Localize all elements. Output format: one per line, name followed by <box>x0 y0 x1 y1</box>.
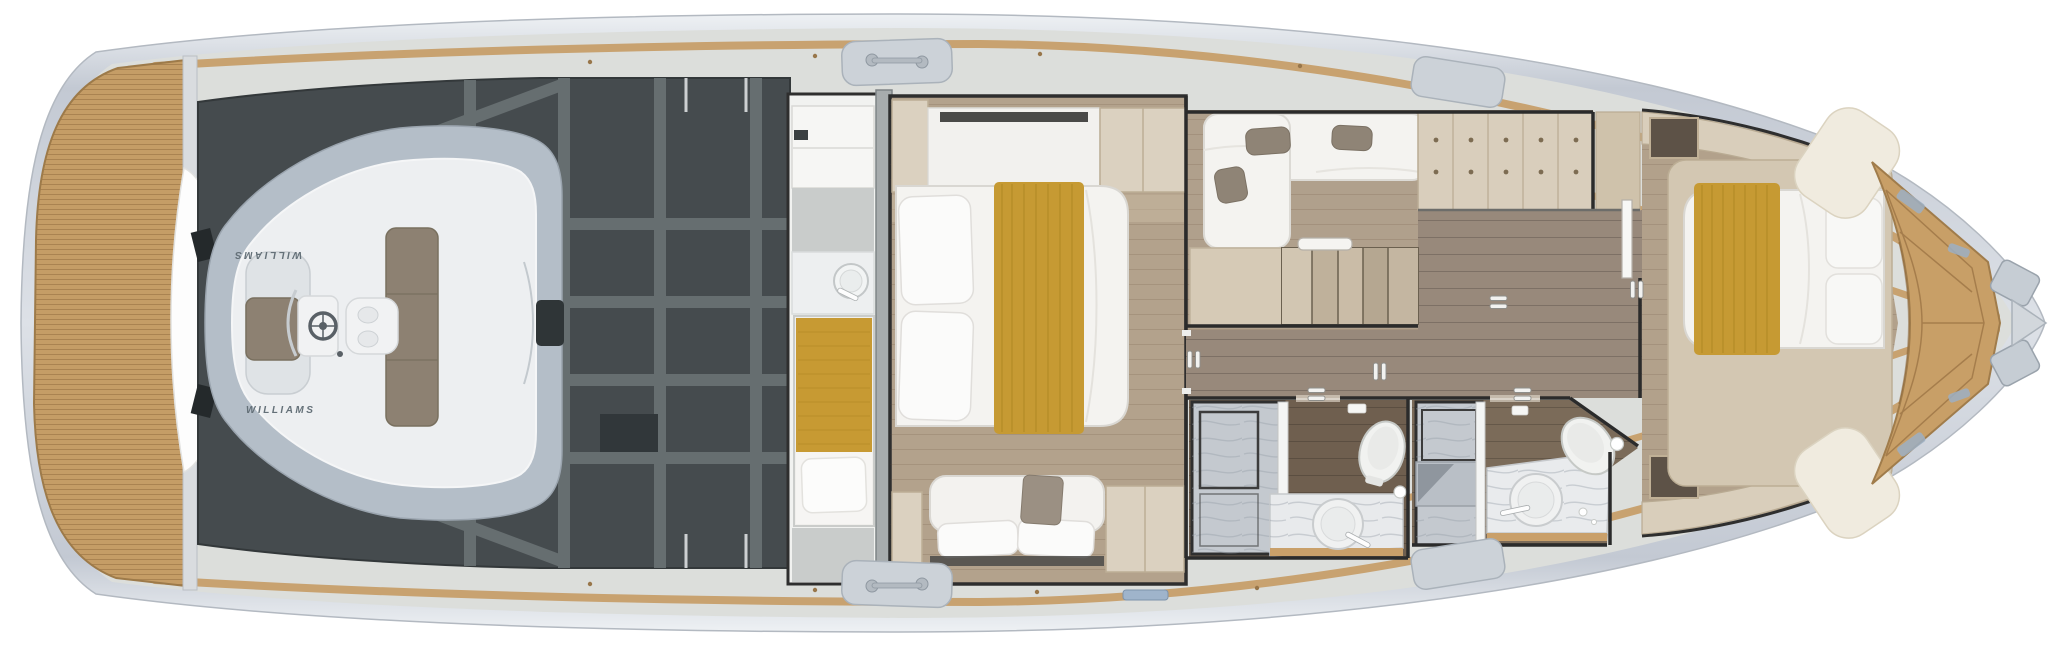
cleat-plate <box>841 560 952 608</box>
master-toilet-flush <box>1394 486 1406 498</box>
hull-fitting-blue <box>1123 590 1168 600</box>
master-vanity <box>1270 494 1403 556</box>
twin-pillow <box>1213 166 1248 205</box>
crew-single-berth <box>794 316 874 526</box>
swim-platform: solaris power. <box>34 56 224 590</box>
master-cabinet-bottom-left <box>892 492 922 572</box>
guest-shower <box>1416 402 1485 545</box>
cleat-plate <box>841 38 952 86</box>
crew-cabin <box>788 94 878 584</box>
swim-platform-teak <box>34 60 186 586</box>
door-leaf-vip <box>1622 200 1632 278</box>
tender-throttle <box>337 351 343 357</box>
door-jamb <box>1182 388 1191 394</box>
master-bed-gold-runner <box>994 182 1084 434</box>
tender-seat-cushion <box>358 331 378 347</box>
master-cabin <box>890 96 1186 584</box>
corridor-grain-fwd <box>1418 210 1642 398</box>
vip-cabin <box>1650 98 1910 548</box>
twin-cabinet <box>1190 248 1282 326</box>
tender-seat-cushion <box>358 307 378 323</box>
steering-wheel-icon <box>310 313 336 339</box>
yacht-floor-plan: solaris power. <box>0 0 2048 646</box>
twin-pillow <box>1245 126 1291 155</box>
master-bathroom <box>1189 400 1411 558</box>
master-double-bed <box>896 182 1128 434</box>
mid-section <box>1182 96 1643 558</box>
door-jamb <box>1182 330 1191 336</box>
bath-shelf-item <box>1512 406 1528 415</box>
engine-room-hatch <box>600 414 658 452</box>
vip-dresser-top <box>1650 118 1698 158</box>
vip-bed-gold-runner <box>1694 183 1780 355</box>
master-nightstand-left <box>892 100 928 192</box>
floor-plan-canvas: solaris power. <box>0 0 2048 646</box>
bath-shelf-item <box>1348 404 1366 413</box>
wardrobe-lockers <box>1418 112 1640 210</box>
stair-handrail <box>1298 238 1352 250</box>
tender-logo-bottom: WILLIAMS <box>246 405 315 416</box>
tender-bow-cushion <box>246 298 300 360</box>
crew-cabinet-handle <box>794 130 808 140</box>
crew-floor <box>792 188 874 252</box>
guest-toilet-flush <box>1611 438 1624 451</box>
vip-pillow <box>1826 274 1882 344</box>
master-headboard-slot <box>940 112 1088 122</box>
tender-jet-nozzle <box>536 300 564 346</box>
staircase <box>1282 238 1418 324</box>
twin-pillow <box>1331 125 1372 151</box>
tender-logo-top: WILLIAMS <box>233 249 302 260</box>
